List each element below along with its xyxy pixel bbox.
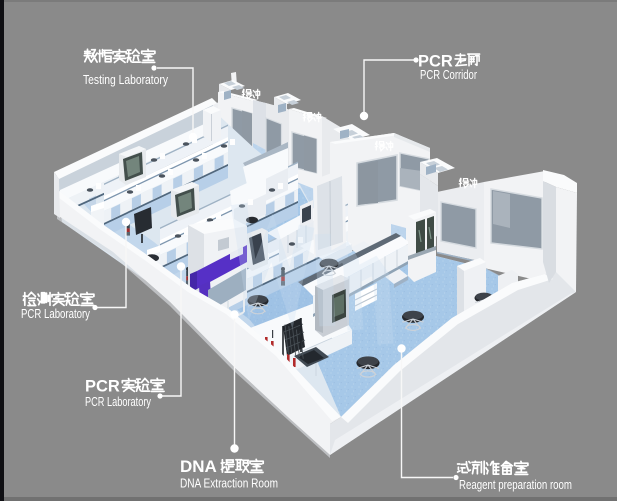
svg-text:PCR Corridor: PCR Corridor xyxy=(420,68,477,82)
svg-text:Testing Laboratory: Testing Laboratory xyxy=(83,72,168,87)
svg-text:DNA: DNA xyxy=(180,457,217,476)
svg-text:Reagent preparation room: Reagent preparation room xyxy=(459,477,572,492)
svg-text:DNA Extraction Room: DNA Extraction Room xyxy=(180,476,278,491)
svg-text:PCR: PCR xyxy=(85,378,120,396)
svg-text:PCR Laboratory: PCR Laboratory xyxy=(85,395,152,409)
svg-text:PCR Laboratory: PCR Laboratory xyxy=(21,306,90,321)
